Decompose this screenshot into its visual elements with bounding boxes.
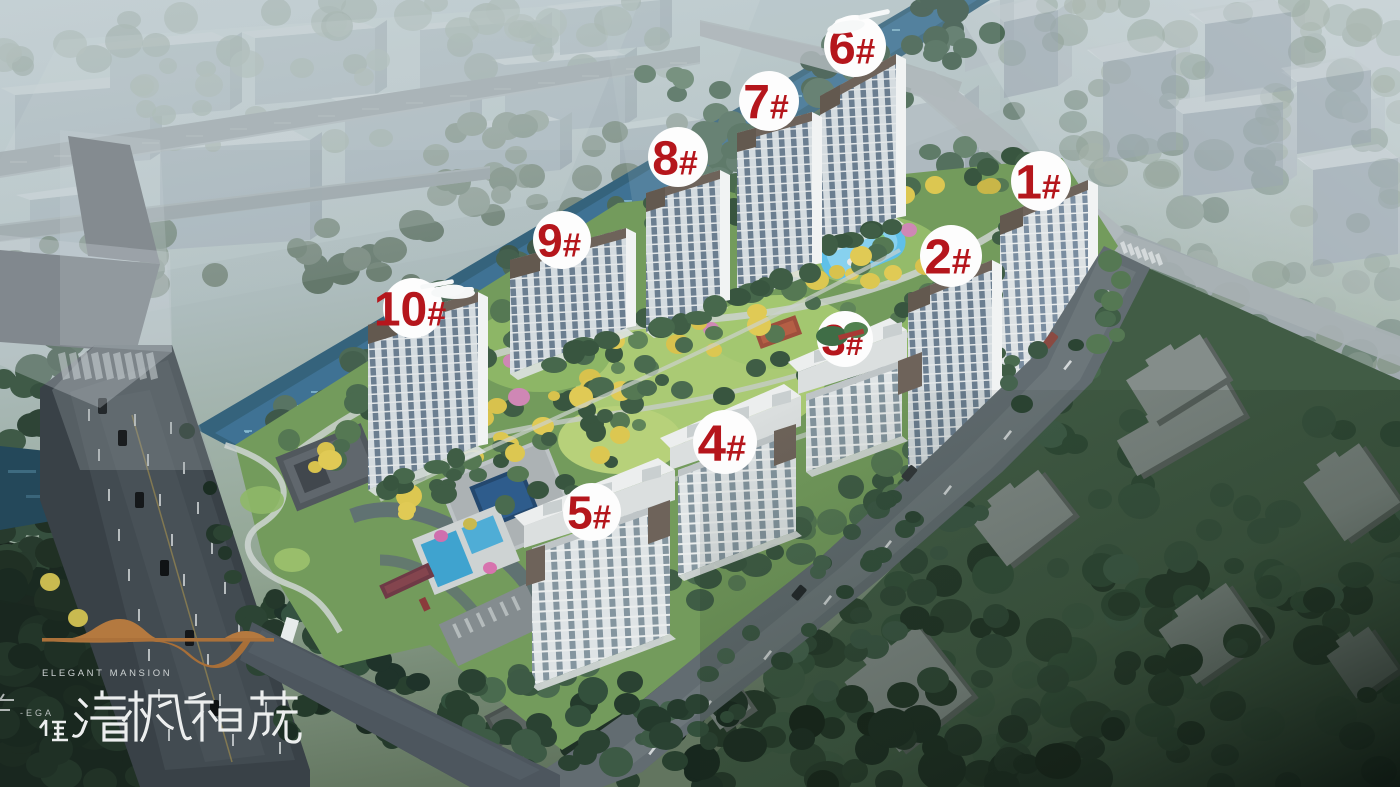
svg-text:ELEGANT MANSION: ELEGANT MANSION bbox=[42, 668, 172, 679]
svg-text:-EGA: -EGA bbox=[20, 708, 54, 718]
